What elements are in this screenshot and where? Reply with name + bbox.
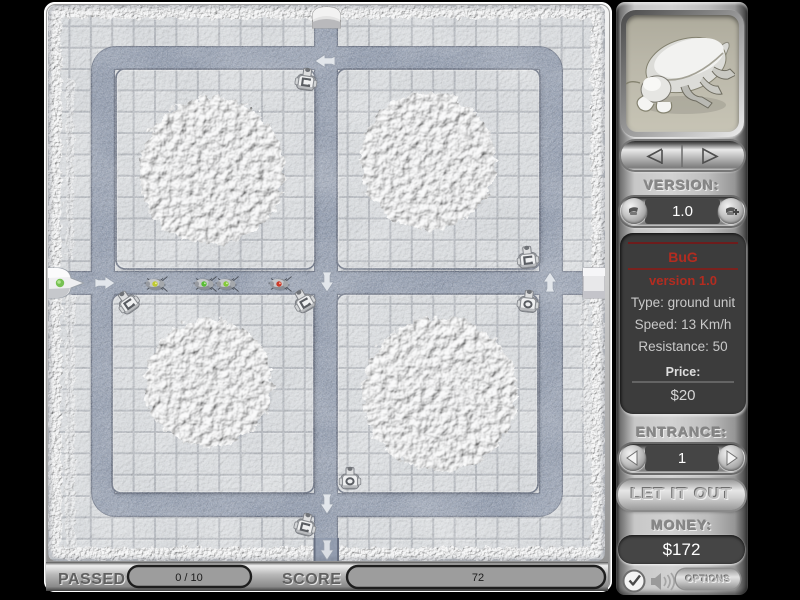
svg-text:0 / 10: 0 / 10	[175, 572, 203, 584]
svg-text:PASSED: PASSED	[58, 571, 126, 588]
svg-text:72: 72	[472, 572, 484, 584]
svg-text:SCORE: SCORE	[282, 571, 341, 588]
